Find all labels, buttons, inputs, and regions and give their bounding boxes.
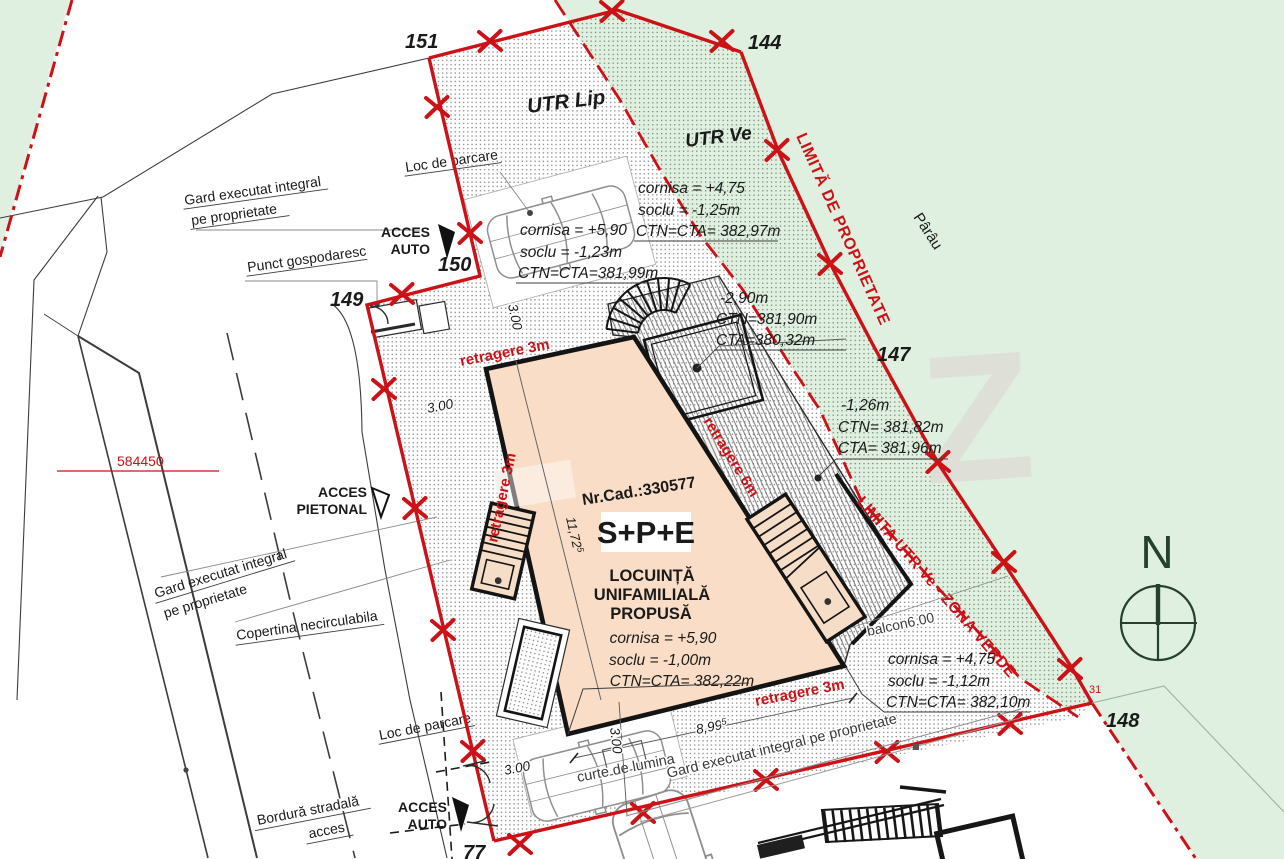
svg-text:PROPUSĂ: PROPUSĂ <box>610 604 692 623</box>
svg-text:31: 31 <box>1089 684 1101 696</box>
svg-text:ACCES: ACCES <box>398 799 447 815</box>
svg-text:cornisa = +4,75: cornisa = +4,75 <box>888 651 995 668</box>
svg-text:S+P+E: S+P+E <box>597 515 695 550</box>
svg-text:N: N <box>1140 526 1173 578</box>
svg-text:soclu = -1,23m: soclu = -1,23m <box>520 244 622 261</box>
svg-text:cornisa = +5,90: cornisa = +5,90 <box>610 630 717 647</box>
svg-text:soclu = -1,12m: soclu = -1,12m <box>888 673 990 690</box>
svg-text:77: 77 <box>463 842 486 859</box>
svg-text:147: 147 <box>877 344 911 366</box>
svg-text:LOCUINȚĂ: LOCUINȚĂ <box>609 566 694 585</box>
svg-text:149: 149 <box>330 289 364 311</box>
svg-text:-2,90m: -2,90m <box>720 290 768 307</box>
svg-text:soclu = -1,25m: soclu = -1,25m <box>638 202 740 219</box>
svg-text:144: 144 <box>748 32 781 54</box>
svg-text:PIETONAL: PIETONAL <box>296 501 367 517</box>
svg-text:CTN= 381,82m: CTN= 381,82m <box>838 419 944 436</box>
svg-text:CTA= 381,96m: CTA= 381,96m <box>838 440 942 457</box>
svg-text:UNIFAMILIALĂ: UNIFAMILIALĂ <box>594 585 710 604</box>
svg-text:CTN=CTA= 382,97m: CTN=CTA= 382,97m <box>636 223 781 240</box>
svg-text:cornisa = +4,75: cornisa = +4,75 <box>638 180 745 197</box>
svg-text:Z: Z <box>914 312 1039 523</box>
svg-text:CTN=CTA= 382,10m: CTN=CTA= 382,10m <box>886 694 1031 711</box>
svg-text:CTN=381,90m: CTN=381,90m <box>716 311 817 328</box>
svg-text:ACCES: ACCES <box>318 484 367 500</box>
svg-text:150: 150 <box>438 254 471 276</box>
svg-text:CTA=380,32m: CTA=380,32m <box>716 332 815 349</box>
svg-text:AUTO: AUTO <box>391 241 431 257</box>
svg-text:cornisa = +5,90: cornisa = +5,90 <box>520 222 627 239</box>
svg-text:CTN=CTA=381,99m: CTN=CTA=381,99m <box>518 265 658 282</box>
svg-text:151: 151 <box>405 31 438 53</box>
svg-text:148: 148 <box>1106 710 1140 732</box>
svg-text:soclu = -1,00m: soclu = -1,00m <box>609 652 711 669</box>
svg-text:-1,26m: -1,26m <box>841 397 889 414</box>
svg-text:ACCES: ACCES <box>381 224 430 240</box>
svg-text:584450: 584450 <box>117 453 164 469</box>
